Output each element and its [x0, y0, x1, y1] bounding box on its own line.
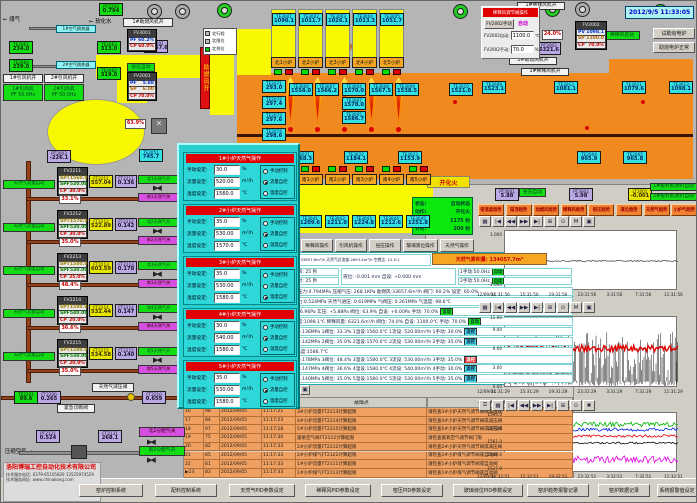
fan-icon [453, 4, 468, 19]
popup-field-label: 温度设定: [187, 191, 207, 197]
north-furnace-label-1: 北1小炉 [271, 57, 296, 68]
popup-radio-option-2[interactable]: 流量自控 [263, 179, 288, 185]
trend-button-4[interactable]: 稀释风趋势 [561, 204, 587, 216]
popup-field-label: 流量设定: [187, 335, 207, 341]
controller-param: SPT [60, 219, 70, 225]
chart-2-toolbar-zoom-icon[interactable]: ⊙ [557, 302, 569, 313]
sensor-value: 1184.1 [346, 157, 366, 162]
chart-1-toolbar-mark-icon[interactable]: M [570, 216, 582, 227]
sensor-te3006-18: TE30061558.0 [289, 83, 313, 96]
chart-3-toolbar-key-icon[interactable]: ⚿ [479, 400, 491, 411]
controller-row: PV1098.1 [577, 30, 605, 36]
south-indicator-closed [366, 166, 374, 172]
chart-2-ytick: 9.00 [478, 327, 502, 333]
fuel-valve-open-label-2: 北2天然气开 [138, 218, 179, 227]
sensor-value: -0.001 [631, 194, 650, 199]
dilution-auto-input[interactable]: 1100.0 [511, 31, 534, 40]
chart-1-toolbar-zoom-icon[interactable]: ⊙ [557, 216, 569, 227]
chart-1-toolbar-grid-icon[interactable]: ▦ [479, 216, 491, 227]
radio-label: 流量自控 [270, 335, 288, 341]
controller-param: PF [130, 81, 137, 87]
controller-param: CP [130, 94, 137, 100]
popup-field-input[interactable]: 1580.0 [214, 397, 240, 407]
fuel-valve-icon-1: ▶◀ [153, 184, 167, 193]
bottom-nav-button-2[interactable]: 配料控制系统 [155, 484, 217, 497]
bottom-nav-button-9[interactable]: 系统报警值设定 [657, 484, 697, 497]
popup-field-input[interactable]: 530.00 [214, 281, 240, 291]
north-furnace-label-2: 北2小炉 [298, 57, 323, 68]
south-indicator-open [382, 166, 390, 172]
sensor-value: 313.0 [101, 47, 117, 52]
fuel-controller-fv2211: FV2211SPT1560.0SPF520.00CP30.0% [57, 167, 88, 196]
south-indicator-closed [339, 166, 347, 172]
fan2-on-label: 2#引风机开 [44, 74, 84, 83]
radio-icon[interactable] [263, 191, 268, 196]
chart-3-toolbar-stop-icon[interactable]: ✖ [583, 400, 595, 411]
popup-field-input[interactable]: 1580.0 [214, 293, 240, 303]
chart-2-toolbar-fwd-icon[interactable]: ▶▶ [518, 302, 530, 313]
sensor-value: 293.0 [266, 86, 282, 91]
sensor-te2063-3: TE2063313.0 [97, 41, 121, 54]
alarm-fault: 富氧空气阀FT2112计算超限 [296, 434, 427, 443]
radio-icon[interactable] [263, 221, 268, 226]
controller-fv3001: FV3001PF60.2%CP60.0% [127, 29, 157, 52]
sensor-pt3002-41: PT30025.98 [569, 188, 593, 201]
north2-dist-closed-label: 北2分配气关 [139, 427, 185, 437]
burner-dot [315, 127, 320, 132]
sensor-value: 557.04 [91, 181, 111, 186]
popup-field-input[interactable]: 35.0 [214, 373, 240, 383]
popup-radio-option-1[interactable]: 手动控制 [263, 324, 288, 330]
alarm-seq: ▶23 [184, 469, 204, 478]
controller-row: SPF530.00 [59, 354, 86, 360]
sensor-value: 603.59 [91, 267, 111, 272]
alarm-date: 2012/09/05 [220, 417, 262, 426]
popup-section-4: 4#小炉天然气操作手动设定:30.0%流量设定:540.00m³/h温度设定:1… [183, 308, 297, 357]
popup-field-unit: m³/h [242, 231, 253, 236]
sensor-value: 1523.1 [484, 87, 504, 92]
sensor-value: 1212.6 [381, 221, 401, 226]
comb-air-duct [210, 45, 234, 115]
radio-icon[interactable] [263, 232, 268, 237]
chart-3-toolbar-fwd-icon[interactable]: ▶▶ [531, 400, 543, 411]
controller-param: SPT [60, 305, 70, 311]
alarm-toolbar-lock-icon[interactable]: ▣ [300, 385, 310, 395]
popup-field-label: 流量设定: [187, 283, 207, 289]
trend-button-1[interactable]: 窑温度趋势 [478, 204, 504, 216]
chart-2-ytick: 6.00 [478, 346, 502, 352]
popup-field-unit: % [242, 271, 246, 276]
popup-field-label: 温度设定: [187, 295, 207, 301]
trend-button-8[interactable]: 小炉气趋势 [671, 204, 697, 216]
radio-label: 手动控制 [270, 168, 288, 174]
radio-icon[interactable] [263, 399, 268, 404]
popup-field-label: 手动设定: [187, 375, 207, 381]
sensor-value: 5.88 [501, 194, 514, 199]
dilution-manual-input[interactable]: 70.0 [511, 45, 534, 54]
chart-2-toolbar-grid-icon[interactable]: ▦ [479, 302, 491, 313]
alarm-code: 81 [204, 460, 220, 469]
popup-field-unit: m³/h [242, 179, 253, 184]
popup-field-input[interactable]: 35.0 [214, 269, 240, 279]
popup-radio-option-1[interactable]: 手动控制 [263, 220, 288, 226]
popup-field-input[interactable]: 35.0 [214, 217, 240, 227]
radio-icon[interactable] [263, 243, 268, 248]
sensor-te3004-20: TE30041570.0 [342, 83, 366, 96]
popup-field-input[interactable]: 520.00 [214, 177, 240, 187]
chart-1-toolbar-save-icon[interactable]: ▣ [583, 216, 595, 227]
sensor-te2074-16: TE2074298.6 [262, 128, 286, 141]
fan-icon [147, 4, 162, 19]
controller-id: FV2212 [59, 212, 86, 218]
chart-1-toolbar-print-icon[interactable]: ⊞ [544, 216, 556, 227]
popup-radio-option-3[interactable]: 温度自控 [263, 398, 288, 404]
sensor-value: 1098.1 [671, 87, 691, 92]
popup-field-label: 手动设定: [187, 271, 207, 277]
radio-icon[interactable] [263, 284, 268, 289]
sensor-dot [641, 100, 645, 104]
popup-radio-group: 手动控制流量自控温度自控 [260, 217, 295, 251]
radio-icon[interactable] [263, 273, 268, 278]
sensor-dot [453, 100, 457, 104]
sensor-te3003-10: TE30031026.1 [326, 13, 350, 26]
sensor-te2004-33: TE2004965.9 [577, 151, 601, 164]
controller-row: SP1100.0 [577, 36, 605, 42]
controller-param: SPF [60, 225, 70, 231]
sensor-value: 0.136 [118, 181, 134, 186]
status-row: 状态:自动状态 [415, 200, 470, 207]
popup-field-input[interactable]: 30.0 [214, 165, 240, 175]
sensor-pt2003-6: PT2003-226.1 [47, 150, 71, 163]
fuel-valve-icon-5: ▶◀ [153, 356, 167, 365]
controller-param: CP [60, 232, 67, 238]
alarm-header-fault: 故障点 [296, 397, 427, 408]
param-text: 天然气压力:0.794MPa 压缩气压: 268.1KPa 助燃风:33657.… [284, 289, 478, 295]
sensor-value: 1026.1 [328, 19, 348, 24]
popup-field-input[interactable]: 1570.0 [214, 241, 240, 251]
sensor-value: 298.6 [266, 134, 282, 139]
sensor-value: 5.98 [575, 194, 588, 199]
popup-field-input[interactable]: 540.00 [214, 333, 240, 343]
popup-radio-option-3[interactable]: 温度自控 [263, 294, 288, 300]
alarm-code: 98 [204, 408, 220, 417]
popup-radio-option-2[interactable]: 流量自控 [263, 335, 288, 341]
south-wall [609, 59, 693, 75]
sensor-lt2001-42: LT2001-0.001 [628, 188, 652, 201]
sensor-value: 0.524 [40, 436, 56, 441]
chart-2-toolbar-first-icon[interactable]: |◀ [492, 302, 504, 313]
controller-param: SPF [60, 354, 70, 360]
sensor-pt2121-47: PT21210.524 [36, 430, 60, 443]
popup-radio-option-3[interactable]: 温度自控 [263, 190, 288, 196]
burner-dot [288, 127, 293, 132]
fuel-valve-closed-label-4: 南4天然气关 [138, 322, 179, 331]
chart-3-toolbar-first-icon[interactable]: |◀ [505, 400, 517, 411]
alarm-seq: 16 [184, 408, 204, 417]
controller-value: 530.00 [70, 354, 88, 360]
popup-field-unit: % [242, 167, 246, 172]
chart-3-ytick: 1561.0 [478, 439, 502, 445]
radio-icon[interactable] [263, 180, 268, 185]
controller-row: SPF540.00 [59, 311, 86, 317]
alarm-time: 11:17:23 [262, 417, 296, 426]
bottom-nav-button-1[interactable]: 窑炉控制系统 [79, 484, 143, 497]
sensor-te2061-1: TE2061234.0 [9, 41, 33, 54]
param-fan-1: 1手动:50.0Hz自动 [458, 268, 572, 276]
popup-field-unit: ℃ [242, 243, 247, 248]
status-value: 自动状态 [451, 200, 470, 207]
popup-section-5: 5#小炉天然气操作手动设定:35.0%流量设定:530.00m³/h温度设定:1… [183, 360, 297, 409]
param-text: 煤气压力:0.524MPa 天然气进压: 0.619MPa 气阀压: 0.261… [284, 299, 451, 305]
popup-field-label: 温度设定: [187, 399, 207, 405]
chart-2-toolbar-last-icon[interactable]: ▶| [531, 302, 543, 313]
popup-field-label: 流量设定: [187, 179, 207, 185]
chart-2-toolbar-save-icon[interactable]: ▣ [583, 302, 595, 313]
controller-row: SPF520.00 [59, 182, 86, 188]
sensor-ft2212-flow: FT2212522.89 [89, 218, 113, 231]
controller-value: 530.00 [70, 225, 88, 231]
trend-button-6[interactable]: 液位趋势 [616, 204, 642, 216]
kiln-press-auto-label-right: 窑压自动 [519, 188, 546, 197]
controller-row: CP25.0% [59, 275, 86, 281]
operate-button-2[interactable]: 引风机操作 [335, 239, 367, 252]
south2-dist-open-label: 南2分配气开 [139, 446, 185, 456]
dilution-auto-unit: ℃ [535, 33, 540, 38]
fuel-valve-position-4: 36.6% [59, 324, 81, 333]
sensor-te3008-23: TE30081567.5 [369, 83, 393, 96]
bottom-nav-button-3[interactable]: 天然气PID参数设定 [229, 484, 295, 497]
sensor-dot [585, 126, 589, 130]
sensor-te3011-31: TE30111079.6 [622, 81, 646, 94]
north-indicator-open [301, 69, 309, 75]
scada-screen: 2012/9/5 11:33:05 稀释风调节阀操作 FV2002手动 自动 F… [0, 0, 697, 503]
trend-button-7[interactable]: 天然气趋势 [644, 204, 670, 216]
aux-button-2[interactable]: 助熔电炉正常 [653, 42, 695, 53]
chart-1-ytick: -1.000 [478, 282, 502, 288]
fuel-valve-closed-label-1: 南1天然气关 [138, 193, 179, 202]
sensor-value: 1567.5 [371, 89, 391, 94]
sensor-te3007-19: TE30071566.2 [315, 83, 339, 96]
popup-field-input[interactable]: 530.00 [214, 229, 240, 239]
chart-1-toolbar-last-icon[interactable]: ▶| [531, 216, 543, 227]
radio-icon[interactable] [263, 377, 268, 382]
popup-field-input[interactable]: 530.00 [214, 385, 240, 395]
popup-field-input[interactable]: 30.0 [214, 321, 240, 331]
burner-dot [369, 127, 374, 132]
chart-3-toolbar-rew-icon[interactable]: ◀◀ [518, 400, 530, 411]
param-line-5: 1压力:0.136MPa 1阀位: 33.3% 1温设:1560.0℃ 1流设:… [282, 327, 573, 336]
sensor-te3002-9: TE30021011.7 [299, 13, 323, 26]
radio-label: 温度自控 [270, 346, 288, 352]
north-indicator-open [382, 69, 390, 75]
sensor-ft2215-press: FT22150.140 [115, 347, 137, 360]
param-line-6: 2压力:0.142MPa 2阀位: 35.0% 2温设:1570.0℃ 2流设:… [282, 337, 573, 346]
popup-field-input[interactable]: 1560.0 [214, 189, 240, 199]
operate-button-4[interactable]: 玻璃液位操作 [403, 239, 438, 252]
radio-icon[interactable] [263, 336, 268, 341]
alarm-seq: 19 [184, 434, 204, 443]
dilution-manual-unit: % [535, 47, 539, 52]
radio-icon[interactable] [263, 169, 268, 174]
bottom-nav-button-7[interactable]: 窑炉趋势报警记录 [527, 484, 589, 497]
param-line-9: 4压力:0.147MPa 4阀位: 36.6% 4温设:1580.0℃ 4流设:… [282, 364, 573, 373]
sensor-value: 522.89 [91, 224, 111, 229]
sensor-te3044-38: TE30441212.6 [379, 215, 403, 228]
controller-param: PV [578, 30, 585, 36]
sensor-value: 0.178 [118, 267, 134, 272]
dilution-valve-panel: 稀释风调节阀操作 FV2002手动 自动 FV2002自动: 1100.0 ℃ … [481, 6, 540, 59]
popup-section-3: 3#小炉天然气操作手动设定:35.0%流量设定:530.00m³/h温度设定:1… [183, 256, 297, 305]
chart-3-ytick: 1527.0 [478, 466, 502, 472]
chart-3-toolbar-print-icon[interactable]: ⊞ [557, 400, 569, 411]
popup-radio-option-3[interactable]: 温度自控 [263, 346, 288, 352]
controller-value: 1570.0 [70, 219, 88, 225]
chart-2-xtick: 15:31:29 [520, 389, 548, 395]
controller-value: 20.0% [69, 361, 85, 367]
chart-2-xtick: 11:31:29 [664, 389, 692, 395]
dilution-manual-label-text: FV2002手动: [484, 47, 510, 53]
bottom-nav-button-8[interactable]: 窑炉数据记录 [598, 484, 650, 497]
fan-icon [575, 2, 590, 17]
popup-radio-option-2[interactable]: 流量自控 [263, 231, 288, 237]
south-indicator-open [355, 166, 363, 172]
alarm-time: 11:17:33 [262, 443, 296, 452]
popup-radio-option-3[interactable]: 温度自控 [263, 242, 288, 248]
blower1-on-label: 1#助燃风机开 [123, 18, 173, 27]
sensor-te2005-34: TE2005965.8 [623, 151, 647, 164]
popup-section-title: 1#小炉天然气操作 [186, 154, 294, 163]
dilution-auto-setpoint-row: FV2002自动: 1100.0 ℃ [484, 31, 539, 40]
popup-radio-option-1[interactable]: 手动控制 [263, 168, 288, 174]
controller-value: 60.2% [138, 38, 154, 44]
company-site[interactable]: 技术服务网址: www.chinakong.com [6, 477, 98, 482]
controller-id: FV2214 [59, 298, 86, 304]
sensor-value: 239.0 [13, 65, 29, 70]
south-indicator-closed [420, 166, 428, 172]
radio-icon[interactable] [263, 347, 268, 352]
sensor-pt2002-43: PT20026321.6 [537, 42, 561, 55]
radio-label: 流量自控 [270, 231, 288, 237]
dilution-fan-on-label-2: 1#稀释风机开 [521, 68, 569, 76]
alarm-fault: 5#小炉流量FT2215计算超限 [296, 425, 427, 434]
controller-row: SP6.00 [129, 87, 155, 93]
popup-radio-option-2[interactable]: 流量自控 [263, 387, 288, 393]
sensor-value: 534.58 [91, 353, 111, 358]
sensor-te2201-44: TE220199.6 [14, 391, 38, 404]
sensor-te3013-32: TE30131098.1 [669, 81, 693, 94]
alarm-code: 75 [204, 434, 220, 443]
param-text: 1手动:50.0Hz [460, 269, 490, 275]
radio-icon[interactable] [263, 325, 268, 330]
south-indicator-open [328, 166, 336, 172]
popup-radio-option-2[interactable]: 流量自控 [263, 283, 288, 289]
radio-label: 流量自控 [270, 387, 288, 393]
bottom-nav-button-4[interactable]: 稀释风PID参数设定 [305, 484, 371, 497]
alarm-seq: 18 [184, 425, 204, 434]
radio-icon[interactable] [263, 295, 268, 300]
operate-button-1[interactable]: 稀释风操作 [301, 239, 333, 252]
popup-radio-group: 手动控制流量自控温度自控 [260, 373, 295, 407]
controller-param: SPT [60, 176, 70, 182]
sensor-te3004-11: TE30041013.3 [353, 13, 377, 26]
chart-2-toolbar-print-icon[interactable]: ⊞ [544, 302, 556, 313]
alarm-date: 2012/09/05 [220, 443, 262, 452]
popup-section-title: 5#小炉天然气操作 [186, 362, 294, 371]
chart-1-xtick: 11:31:56 [491, 292, 519, 298]
chart-2-toolbar-mark-icon[interactable]: M [570, 302, 582, 313]
controller-param: CP [578, 43, 585, 49]
south-indicator-open [409, 166, 417, 172]
sensor-te3012-30: TE30121081.1 [554, 81, 578, 94]
sensor-value: 319.0 [101, 73, 117, 78]
popup-radio-option-1[interactable]: 手动控制 [263, 376, 288, 382]
popup-field-label: 温度设定: [187, 243, 207, 249]
fuel-mode-label-5: 天然气流量自动 [3, 352, 55, 361]
chart-1-xtick: 19:31:56 [549, 292, 577, 298]
trend-button-2[interactable]: 碹顶趋势 [506, 204, 532, 216]
sensor-te3045-39: TE30451251.8 [406, 215, 430, 228]
controller-id: FV2002 [577, 23, 605, 29]
controller-fv2001: FV2001PF5.88SP6.00CP70.0% [127, 72, 157, 101]
radio-label: 流量自控 [270, 283, 288, 289]
popup-field-input[interactable]: 1580.0 [214, 345, 240, 355]
radio-icon[interactable] [263, 388, 268, 393]
dilution-manual-button[interactable]: FV2002手动 [484, 19, 514, 29]
sensor-value: 1566.2 [317, 89, 337, 94]
controller-row: CP20.0% [59, 361, 86, 367]
bottom-nav-button-6[interactable]: 玻璃液位PID参数设定 [453, 484, 523, 497]
controller-param: SPT [60, 348, 70, 354]
operate-button-5[interactable]: 天然气操作 [440, 239, 474, 252]
popup-field-label: 手动设定: [187, 323, 207, 329]
popup-section-title: 4#小炉天然气操作 [186, 310, 294, 319]
chart-1-toolbar-fwd-icon[interactable]: ▶▶ [518, 216, 530, 227]
controller-param: PF [130, 38, 137, 44]
chart-2-toolbar-rew-icon[interactable]: ◀◀ [505, 302, 517, 313]
alarm-fault: 1#小炉流量FT2111计算超限 [296, 460, 427, 469]
sensor-value: 99.6 [20, 397, 33, 402]
controller-value: 25.0% [69, 275, 85, 281]
fuel-valve-icon-3: ▶◀ [153, 270, 167, 279]
sensor-value: 0.140 [118, 353, 134, 358]
aux-button-1[interactable]: 试助熔电炉 [653, 28, 695, 39]
trend-button-5[interactable]: 窑压趋势 [588, 204, 614, 216]
chart-1-xtick: 15:31:56 [520, 292, 548, 298]
alarm-seq: 22 [184, 460, 204, 469]
south-indicator-open [301, 166, 309, 172]
param-text: 4压力:0.147MPa 4阀位: 36.6% 4温设:1580.0℃ 4流设:… [284, 366, 462, 372]
fuel-valve-open-label-1: 北1天然气开 [138, 175, 179, 184]
chart-3-toolbar-last-icon[interactable]: ▶| [544, 400, 556, 411]
bottom-nav-button-5[interactable]: 窑压PID参数设定 [381, 484, 443, 497]
chart-2-xtick: 3:31:29 [606, 389, 634, 395]
chart-1-toolbar-rew-icon[interactable]: ◀◀ [505, 216, 517, 227]
chart-3-toolbar-zoom-icon[interactable]: ⊙ [570, 400, 582, 411]
param-text: 3压力:0.178MPa 3阀位: 48.4% 3温设:1580.0℃ 3流设:… [284, 357, 462, 363]
chart-1-toolbar-first-icon[interactable]: |◀ [492, 216, 504, 227]
controller-value: 1098.1 [586, 30, 604, 36]
fuel-valve-open-label-4: 北4天然气开 [138, 304, 179, 313]
radio-label: 流量自控 [270, 179, 288, 185]
trend-button-3[interactable]: 助燃风趋势 [533, 204, 559, 216]
popup-radio-option-1[interactable]: 手动控制 [263, 272, 288, 278]
sensor-value: 1211.0 [327, 221, 347, 226]
chart-3-toolbar-grid-icon[interactable]: ▦ [492, 400, 504, 411]
operate-button-3[interactable]: 窑压操作 [369, 239, 401, 252]
controller-param: SPF [60, 311, 70, 317]
controller-value: 520.00 [70, 182, 88, 188]
fan1-on-label: 1#引风机开 [3, 74, 43, 83]
